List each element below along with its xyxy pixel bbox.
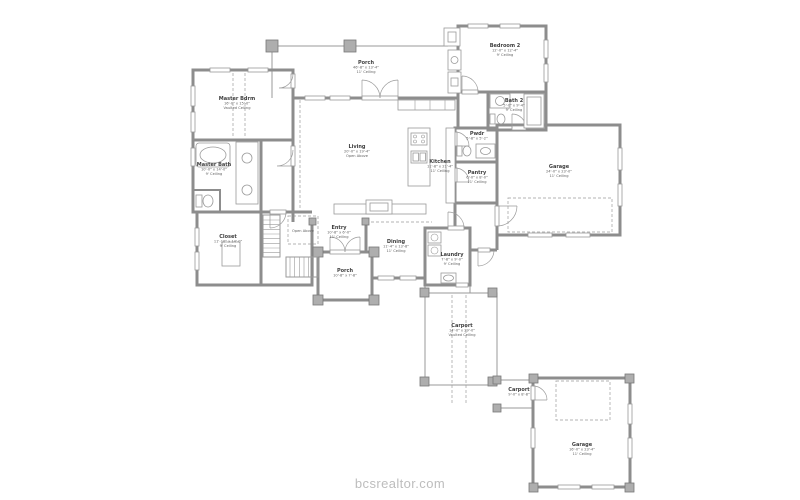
- room-label-living: Living20'-0" x 19'-4"Open Above: [344, 144, 370, 158]
- room-label-garage-attached: Garage24'-0" x 23'-0"11' Ceiling: [546, 164, 572, 178]
- wall-garage-attached: [497, 125, 620, 235]
- svg-text:10'-8" x 7'-8": 10'-8" x 7'-8": [333, 274, 357, 278]
- room-label-carport-small: Carport9'-0" x 8'-8": [508, 387, 530, 397]
- room-label-pwdr: Pwdr5'-8" x 5'-2": [466, 131, 488, 141]
- svg-text:Open Above: Open Above: [346, 154, 369, 158]
- svg-text:Vaulted Ceiling: Vaulted Ceiling: [449, 333, 476, 337]
- room-label-pantry: Pantry6'-0" x 8'-0"11' Ceiling: [466, 170, 488, 184]
- svg-text:11' Ceiling: 11' Ceiling: [468, 180, 487, 184]
- floorplan-canvas: Porch46'-8" x 13'-4"11' CeilingBedroom 2…: [0, 0, 800, 500]
- kitchen-island-icon: [408, 128, 430, 186]
- svg-text:9' Ceiling: 9' Ceiling: [220, 244, 237, 248]
- media-wall-icon: [334, 200, 426, 214]
- note-open-above: Open Above: [292, 229, 315, 233]
- room-label-garage-detached: Garage16'-0" x 23'-4"11' Ceiling: [569, 442, 595, 456]
- room-label-master-bdrm: Master Bdrm16'-0" x 15'-0"Vaulted Ceilin…: [219, 96, 255, 110]
- room-label-laundry: Laundry7'-8" x 9'-0"9' Ceiling: [441, 252, 465, 266]
- outdoor-kitchen-icon: [444, 28, 461, 93]
- window-openings: [191, 24, 632, 489]
- svg-text:9' Ceiling: 9' Ceiling: [206, 172, 223, 176]
- walls: [193, 26, 630, 487]
- room-label-kitchen: Kitchen11'-8" x 21'-4"11' Ceiling: [427, 159, 453, 173]
- svg-text:11' Ceiling: 11' Ceiling: [357, 70, 376, 74]
- svg-text:11' Ceiling: 11' Ceiling: [330, 235, 349, 239]
- room-label-bedroom-2: Bedroom 212'-0" x 12'-4"9' Ceiling: [490, 43, 521, 57]
- wall-bedroom-2: [458, 26, 546, 92]
- svg-text:5'-8" x 5'-2": 5'-8" x 5'-2": [466, 137, 488, 141]
- svg-text:11' Ceiling: 11' Ceiling: [387, 249, 406, 253]
- svg-text:11' Ceiling: 11' Ceiling: [431, 169, 450, 173]
- svg-text:9' Ceiling: 9' Ceiling: [497, 53, 514, 57]
- master-toilet-icon: [196, 195, 213, 207]
- svg-text:11' Ceiling: 11' Ceiling: [550, 174, 569, 178]
- svg-text:Open Above: Open Above: [292, 229, 315, 233]
- room-label-front-porch: Porch10'-8" x 7'-8": [333, 268, 357, 278]
- svg-text:Vaulted Ceiling: Vaulted Ceiling: [224, 106, 251, 110]
- room-label-carport-long: Carport14'-0" x 29'-0"Vaulted Ceiling: [449, 323, 476, 337]
- room-label-master-bath: Master Bath10'-0" x 14'-0"9' Ceiling: [197, 162, 232, 176]
- room-label-dining: Dining11'-4" x 13'-8"11' Ceiling: [383, 239, 409, 253]
- room-label-back-porch: Porch46'-8" x 13'-4"11' Ceiling: [353, 60, 379, 74]
- svg-text:9' Ceiling: 9' Ceiling: [506, 108, 523, 112]
- floorplan-drawing: Porch46'-8" x 13'-4"11' CeilingBedroom 2…: [0, 0, 800, 500]
- wall-garage-detached: [533, 378, 630, 487]
- svg-text:9'-0" x 8'-8": 9'-0" x 8'-8": [508, 393, 530, 397]
- room-label-entry: Entry10'-8" x 6'-0"11' Ceiling: [327, 225, 351, 239]
- svg-text:11' Ceiling: 11' Ceiling: [573, 452, 592, 456]
- room-label-bath-2: Bath 25'-0" x 9'-4"9' Ceiling: [503, 98, 525, 112]
- svg-text:9' Ceiling: 9' Ceiling: [444, 262, 461, 266]
- master-vanity-icon: [236, 142, 258, 204]
- watermark: bcsrealtor.com: [335, 476, 465, 491]
